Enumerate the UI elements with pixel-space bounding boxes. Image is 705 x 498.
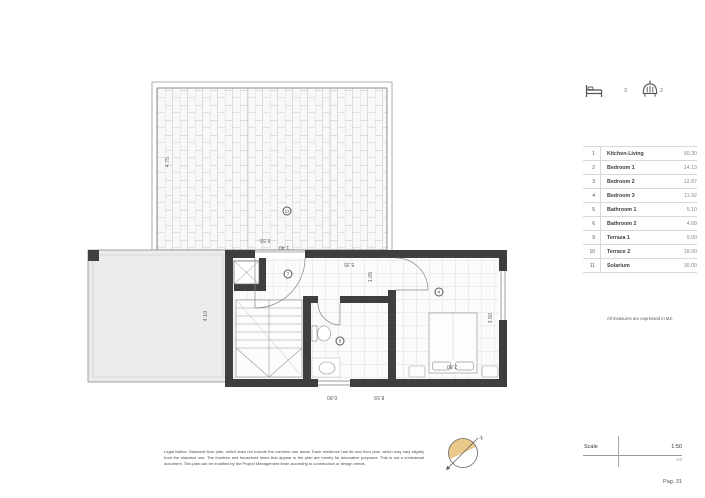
room-name: Bathroom 2 <box>600 217 687 230</box>
marker-solarium: 11 <box>283 207 292 216</box>
room-area: 4.68 <box>687 221 697 227</box>
room-number: 2 <box>583 165 595 171</box>
dim-solarium-width: 6.55 <box>260 237 271 243</box>
dim-house-width: 8.55 <box>374 394 385 400</box>
room-name: Bedroom 3 <box>600 189 684 202</box>
room-number: 1 <box>583 151 595 157</box>
table-row: 1 Kitchen-Living 50.30 <box>583 147 697 161</box>
marker-bathroom: 6 <box>336 337 345 346</box>
bedrooms-count: 3 <box>624 88 627 94</box>
room-number: 5 <box>583 207 595 213</box>
room-number: 10 <box>583 249 595 255</box>
room-area: 18.00 <box>684 249 697 255</box>
washbasin <box>312 358 340 377</box>
legal-notice: Legal Notice: Standard floor plan, which… <box>164 449 424 467</box>
stairs <box>236 300 302 377</box>
solarium-area <box>152 82 392 252</box>
room-area: 50.30 <box>684 151 697 157</box>
table-row: 2 Bedroom 1 14.13 <box>583 161 697 175</box>
table-row: 11 Solarium 30.00 <box>583 259 697 273</box>
marker-bedroom: 4 <box>435 288 444 297</box>
room-number: 9 <box>583 235 595 241</box>
dim-door-width: 1.40 <box>279 244 290 250</box>
scale-divider-line <box>583 455 682 456</box>
room-number: 11 <box>583 263 595 269</box>
table-row: 4 Bedroom 3 11.92 <box>583 189 697 203</box>
table-row: 5 Bathroom 1 5.10 <box>583 203 697 217</box>
dim-solarium-depth: 4.75 <box>165 157 171 168</box>
dim-bed-width: 2.80 <box>447 363 458 369</box>
room-area: 12.87 <box>684 179 697 185</box>
room-name: Bedroom 2 <box>600 175 684 188</box>
bed-icon <box>585 84 603 98</box>
scale-value: 1:50 <box>583 444 682 450</box>
room-area: 9.00 <box>687 235 697 241</box>
paper-size: A3 <box>583 458 682 463</box>
room-name: Bedroom 1 <box>600 161 684 174</box>
dim-terrace-depth: 4.10 <box>203 311 209 322</box>
rooms-table-body: 1 Kitchen-Living 50.30 2 Bedroom 1 14.13… <box>583 146 697 273</box>
shower-icon <box>641 80 659 99</box>
dim-hall-length: 5.35 <box>344 261 355 267</box>
room-number: 3 <box>583 179 595 185</box>
table-row: 9 Terraza 1 9.00 <box>583 231 697 245</box>
room-name: Solarium <box>600 259 684 272</box>
room-name: Terraza 1 <box>600 231 687 244</box>
table-row: 3 Bedroom 2 12.87 <box>583 175 697 189</box>
bathrooms-count: 2 <box>660 88 663 94</box>
table-row: 6 Bathroom 2 4.68 <box>583 217 697 231</box>
room-area: 5.10 <box>687 207 697 213</box>
pillar <box>88 250 99 261</box>
compass-north-letter: N <box>478 435 485 442</box>
table-row: 10 Terrace 2 18.00 <box>583 245 697 259</box>
room-area: 11.92 <box>684 193 697 199</box>
room-name: Bathroom 1 <box>600 203 687 216</box>
toilet <box>312 326 331 341</box>
dim-hall-width: 1.05 <box>368 272 374 283</box>
floor-plan-sheet: N 4.75 6.55 1.40 5.35 1.05 3.50 2.80 0.8… <box>0 0 705 498</box>
measures-note: All measures are expressed in M2. <box>583 316 697 321</box>
room-area: 14.13 <box>684 165 697 171</box>
room-number: 4 <box>583 193 595 199</box>
room-number: 6 <box>583 221 595 227</box>
room-area: 30.00 <box>684 263 697 269</box>
page-number: Pag. 31 <box>583 479 682 485</box>
room-name: Terrace 2 <box>600 245 684 258</box>
marker-landing: 7 <box>284 270 293 279</box>
dim-bedroom-depth: 3.50 <box>488 313 494 324</box>
room-name: Kitchen-Living <box>600 147 684 160</box>
compass: N <box>444 434 485 470</box>
dim-window-width: 0.80 <box>327 394 338 400</box>
